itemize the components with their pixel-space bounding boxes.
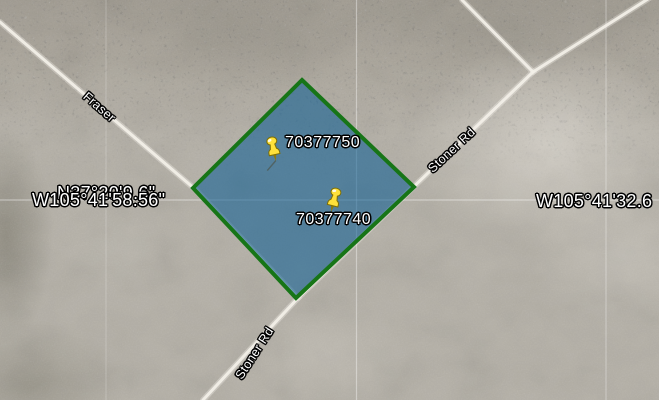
- road-branch: [533, 0, 659, 72]
- longitude-label-left: W105°41'58.56": [32, 191, 165, 210]
- longitude-label-right: W105°41'32.6: [536, 192, 652, 211]
- satellite-map-view[interactable]: 70377750 70377740 N37°20'9.6" W105°41'58…: [0, 0, 659, 400]
- pin-label-70377740[interactable]: 70377740: [296, 212, 371, 229]
- pin-label-70377750[interactable]: 70377750: [285, 135, 360, 152]
- parcel-boundary[interactable]: [193, 80, 414, 298]
